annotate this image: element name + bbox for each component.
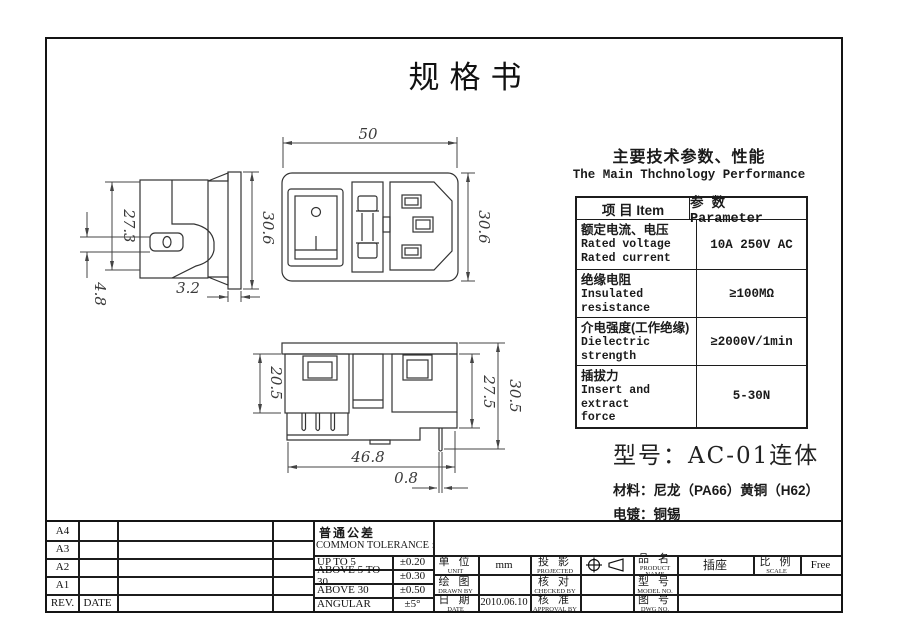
item-cn: 介电强度(工作绝缘)	[581, 321, 693, 336]
tolerance-title-en: COMMON TOLERANCE :	[316, 540, 435, 551]
item-en: Insulated	[581, 288, 693, 302]
dimension-label: 50	[358, 125, 378, 143]
unit-label: 单 位UNIT	[433, 555, 478, 574]
dimension-label: 27.5	[480, 374, 498, 408]
material-info: 材料：尼龙（PA66）黄铜（H62）	[613, 479, 819, 499]
table-row: 绝缘电阻 Insulated resistance ≥100MΩ	[577, 269, 806, 317]
product-info: 型号：AC-01连体 材料：尼龙（PA66）黄铜（H62） 电镀：铜锡	[613, 436, 819, 523]
rev-size-a1: A1	[47, 576, 78, 594]
item-value: ≥2000V/1min	[697, 318, 806, 365]
item-value: 10A 250V AC	[697, 220, 806, 269]
item-cn: 额定电流、电压	[581, 223, 693, 238]
page-title: 规格书	[360, 52, 580, 97]
rev-label: REV.	[47, 594, 78, 611]
dimension-label: 30.6	[475, 210, 493, 244]
spec-table-header: 项 目 Item 参 数 Parameter	[577, 198, 806, 219]
item-en: force	[581, 411, 693, 425]
dimension-label: 0.8	[394, 469, 418, 487]
tech-heading: 主要技术参数、性能 The Main Thchnology Performanc…	[563, 143, 815, 182]
product-name-label: 品 名PRODUCT NAME	[633, 555, 677, 574]
item-cn: 绝缘电阻	[581, 273, 693, 288]
item-en: resistance	[581, 302, 693, 316]
unit-value: mm	[478, 555, 530, 574]
rev-size-a4: A4	[47, 522, 78, 540]
bottom-view-drawing	[253, 343, 505, 493]
model-number: 型号：AC-01连体	[613, 436, 819, 470]
rev-size-a3: A3	[47, 540, 78, 558]
item-value: ≥100MΩ	[697, 270, 806, 317]
dimension-label: 4.8	[91, 281, 109, 306]
tolerance-title-cn: 普通公差	[319, 524, 375, 541]
col-header-item: 项 目 Item	[577, 198, 690, 219]
date-field-label: 日 期DATE	[433, 594, 478, 611]
tolerance-range: ANGULAR	[317, 597, 392, 611]
tolerance-range: ABOVE 5 TO 30	[317, 569, 392, 583]
dimension-label: 20.5	[267, 365, 285, 399]
tolerance-value: ±0.20	[392, 555, 433, 569]
projection-symbol-icon	[580, 555, 633, 574]
item-value: 5-30N	[697, 366, 806, 427]
tolerance-value: ±0.50	[392, 583, 433, 597]
dwg-no-label: 图 号DWG NO.	[633, 594, 677, 611]
tolerance-value: ±0.30	[392, 569, 433, 583]
spec-sheet-page: 规格书	[0, 0, 900, 637]
product-name-value: 插座	[677, 555, 753, 574]
dimension-label: 27.3	[120, 208, 138, 242]
table-row: 额定电流、电压 Rated voltage Rated current 10A …	[577, 219, 806, 269]
approval-by-label: 核 准APPROVAL BY	[530, 594, 580, 611]
item-en: Dielectric strength	[581, 336, 693, 363]
dimension-label: 30.5	[506, 379, 524, 412]
item-en: Rated current	[581, 252, 693, 266]
spec-table: 项 目 Item 参 数 Parameter 额定电流、电压 Rated vol…	[575, 196, 808, 429]
item-cn: 插拔力	[581, 369, 693, 384]
rev-size-a2: A2	[47, 558, 78, 576]
date-label: DATE	[78, 594, 117, 611]
projection-label: 投 影PROJECTED	[530, 555, 580, 574]
scale-label: 比 例SCALE	[753, 555, 800, 574]
tolerance-value: ±5°	[392, 597, 433, 611]
tolerance-range: ABOVE 30	[317, 583, 392, 597]
item-en: Rated voltage	[581, 238, 693, 252]
col-header-parameter: 参 数 Parameter	[690, 198, 806, 219]
tech-heading-cn: 主要技术参数、性能	[563, 143, 815, 167]
front-view-drawing	[282, 137, 475, 281]
dimension-label: 30.6	[259, 211, 277, 245]
date-value: 2010.06.10	[478, 594, 530, 611]
dimension-label: 46.8	[350, 448, 384, 466]
tech-heading-en: The Main Thchnology Performance	[563, 168, 815, 182]
technical-drawing: 27.3 4.8 3.2 30.6 50 30.6 20.5 27.5 30.5…	[50, 100, 570, 520]
dimension-label: 3.2	[176, 279, 200, 297]
item-en: Insert and extract	[581, 384, 693, 411]
scale-value: Free	[800, 555, 841, 574]
title-block: A4 A3 A2 A1 REV. DATE 普通公差 COMMON TOLERA…	[47, 520, 841, 611]
table-row: 插拔力 Insert and extract force 5-30N	[577, 365, 806, 427]
table-row: 介电强度(工作绝缘) Dielectric strength ≥2000V/1m…	[577, 317, 806, 365]
